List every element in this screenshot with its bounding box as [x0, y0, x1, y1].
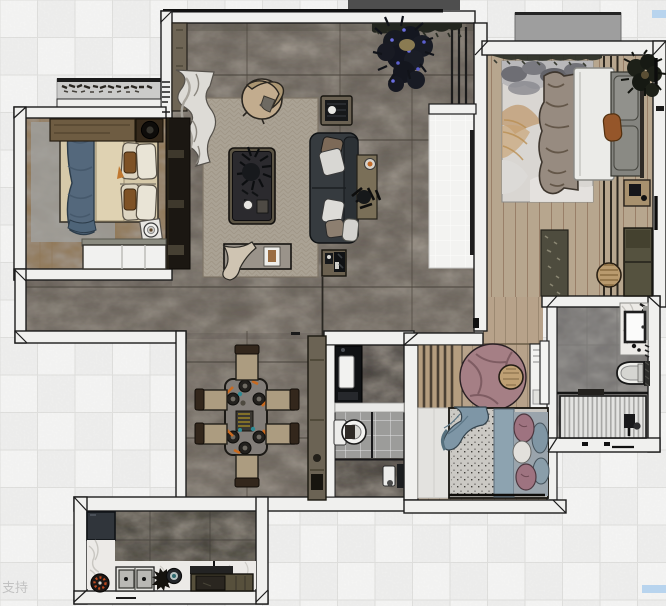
svg-text:支持: 支持: [2, 580, 28, 595]
